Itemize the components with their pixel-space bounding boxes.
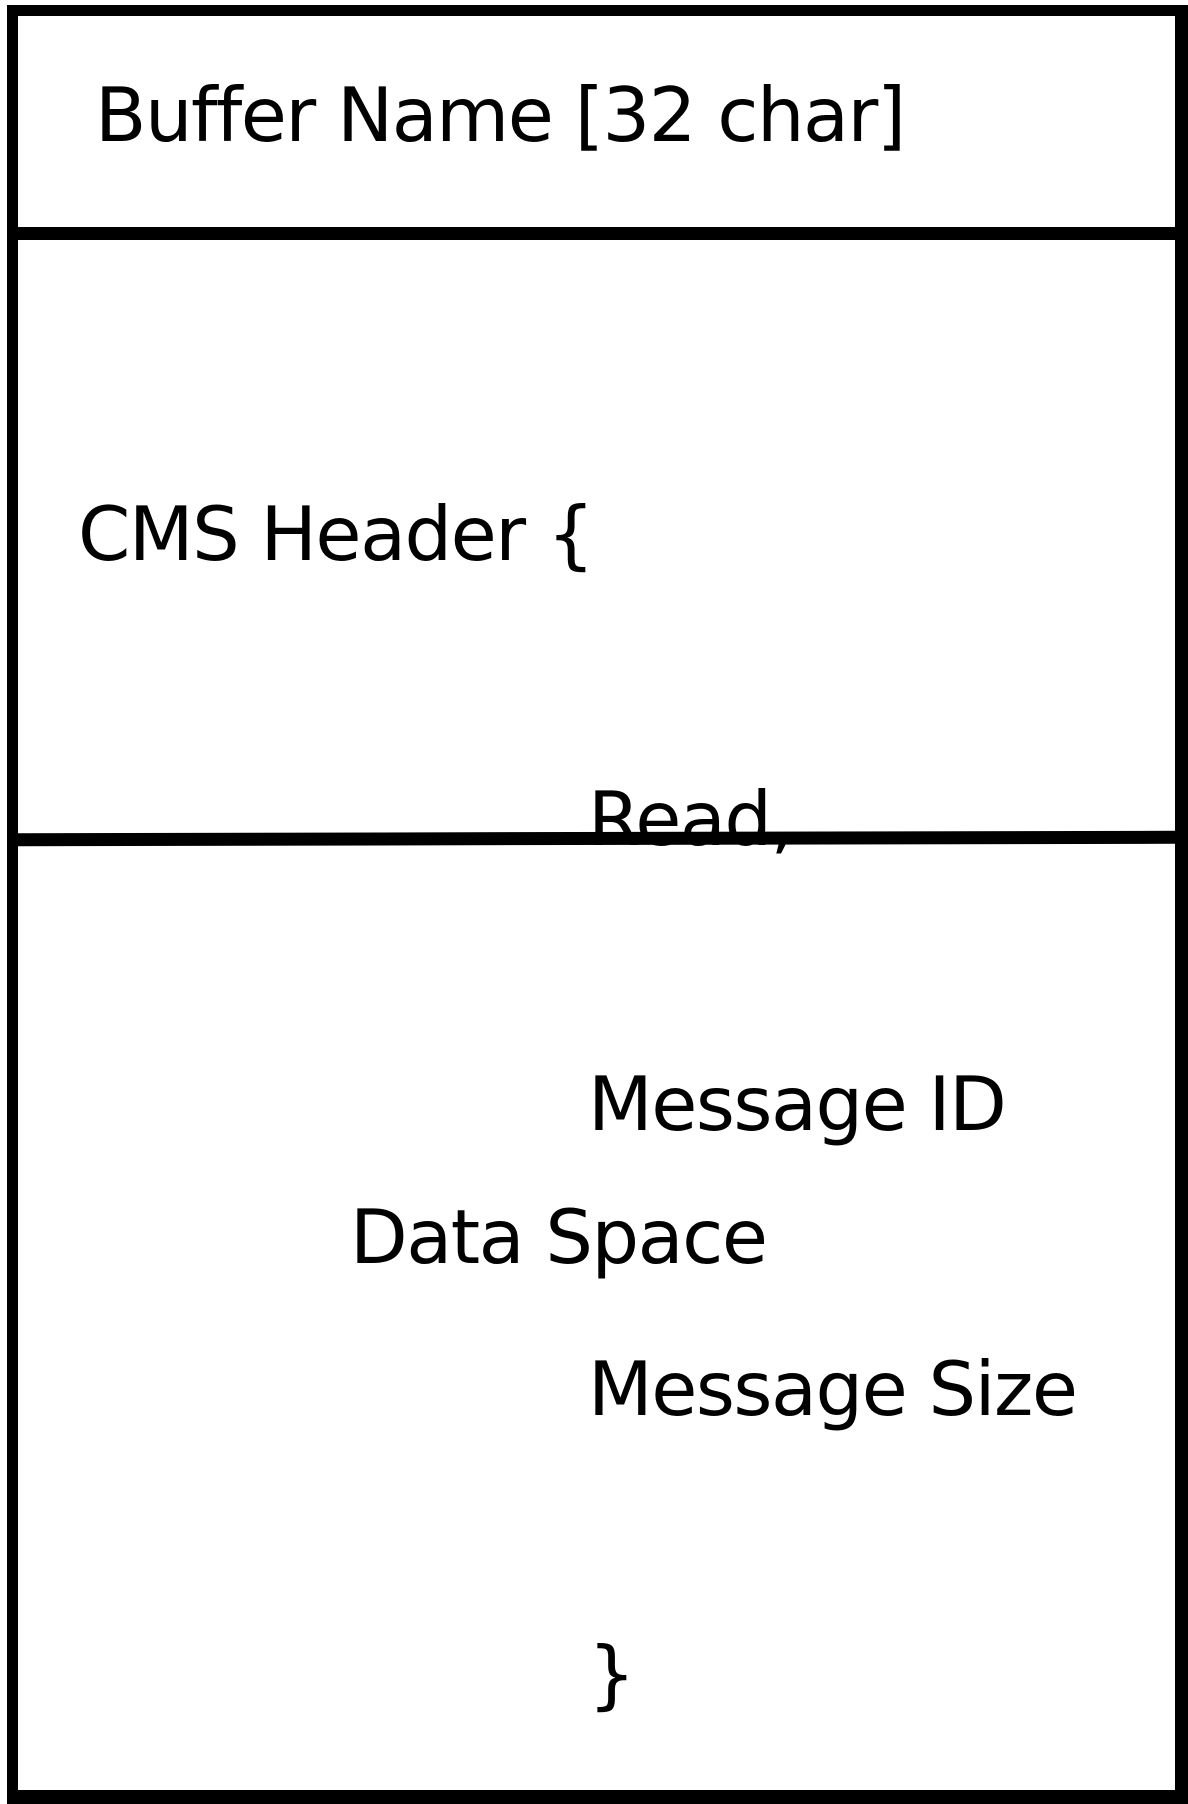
cms-header-close-brace: }	[78, 1627, 1077, 1722]
data-space-label: Data Space	[350, 1190, 766, 1285]
cms-field-read: Read,	[78, 772, 1077, 867]
cms-field-message-size: Message Size	[78, 1342, 1077, 1437]
buffer-layout-diagram: Buffer Name [32 char] CMS Header { Read,…	[0, 0, 1188, 1804]
cms-header-open-line: CMS Header {	[78, 487, 1077, 582]
buffer-name-label: Buffer Name [32 char]	[95, 68, 905, 163]
cms-header-block: CMS Header { Read, Message ID Message Si…	[78, 297, 1077, 1804]
section-divider-bottom	[14, 831, 1175, 846]
cms-field-message-id: Message ID	[78, 1057, 1077, 1152]
section-divider-top	[14, 227, 1175, 240]
